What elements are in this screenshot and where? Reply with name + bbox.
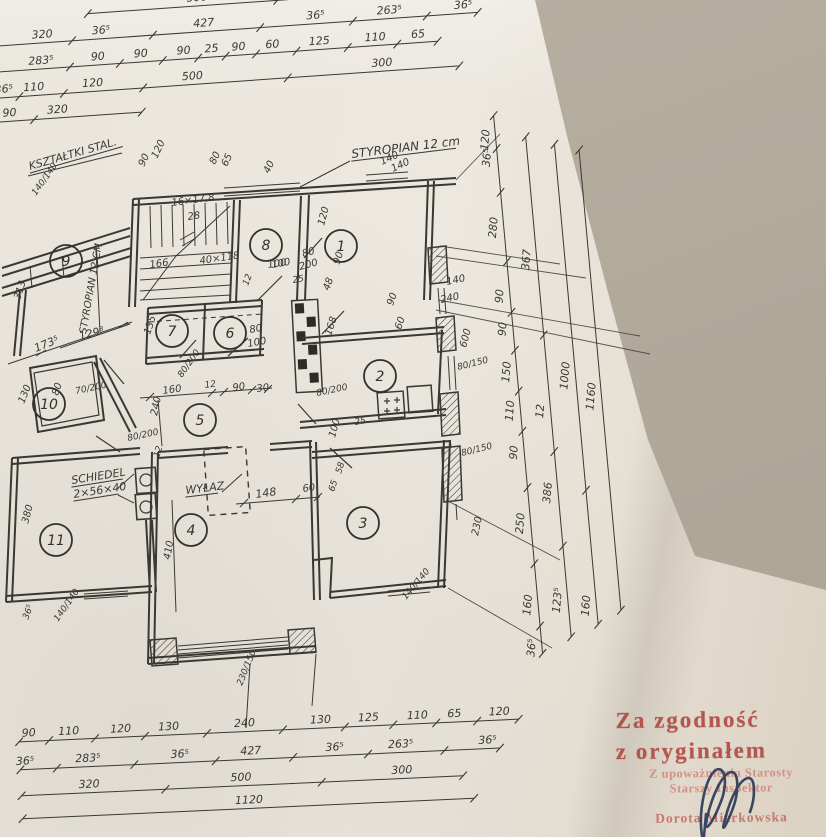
dimension-label: 500 bbox=[181, 69, 203, 83]
dimension-annotation: 380 bbox=[20, 503, 36, 524]
svg-text:70/200: 70/200 bbox=[75, 381, 108, 397]
dimension-annotation: 140 bbox=[445, 273, 466, 288]
dimension-label: 386 bbox=[540, 482, 555, 504]
svg-text:48: 48 bbox=[321, 276, 336, 292]
dimension-annotation: 168 bbox=[323, 315, 339, 337]
svg-text:380: 380 bbox=[20, 503, 36, 524]
dimension-annotation: 100 bbox=[247, 336, 268, 350]
room-circle: 7 bbox=[156, 315, 188, 347]
svg-text:80/150: 80/150 bbox=[460, 441, 493, 458]
dimension-label: 36⁵ bbox=[325, 740, 344, 754]
dimension-annotation: 240 bbox=[149, 396, 164, 417]
svg-text:90: 90 bbox=[232, 381, 246, 394]
dimension-label: 90 bbox=[21, 726, 36, 740]
dimension-annotation: 200 bbox=[298, 257, 319, 273]
dimension-label: 1000 bbox=[557, 361, 572, 390]
svg-text:8: 8 bbox=[262, 238, 271, 254]
dimension-label: 427 bbox=[193, 16, 215, 30]
svg-text:10: 10 bbox=[40, 397, 58, 413]
room-circle: 11 bbox=[40, 524, 72, 556]
stamp-line-2: z oryginałem bbox=[616, 734, 826, 767]
dimension-label: 500 bbox=[186, 0, 208, 5]
svg-text:60: 60 bbox=[302, 482, 316, 495]
dimension-label: 36⁵ bbox=[480, 148, 494, 167]
dimension-annotation: 173⁵ bbox=[32, 333, 60, 355]
dimension-label: 150 bbox=[499, 361, 514, 383]
svg-text:600: 600 bbox=[458, 327, 474, 348]
svg-text:4: 4 bbox=[187, 523, 196, 539]
dimension-label: 1120 bbox=[235, 793, 264, 807]
stamp-line-1: Za zgodność bbox=[615, 703, 825, 736]
dimension-annotation: 80/200 bbox=[176, 348, 203, 380]
dimension-label: 90 bbox=[495, 322, 509, 337]
svg-text:16×17,8: 16×17,8 bbox=[171, 192, 215, 209]
room-circle: 8 bbox=[250, 229, 282, 261]
dimension-label: 123⁵ bbox=[550, 587, 565, 613]
certification-stamp: Za zgodność z oryginałem Z upoważnienia … bbox=[615, 703, 826, 827]
dimension-label: 120 bbox=[110, 722, 132, 736]
dimension-label: 110 bbox=[23, 80, 45, 94]
dimension-label: 280 bbox=[486, 217, 501, 239]
dimension-label: 283⁵ bbox=[28, 53, 54, 68]
dimension-annotation: 230 bbox=[470, 516, 485, 537]
dimension-annotation: 70/200 bbox=[75, 381, 108, 397]
dimension-label: 320 bbox=[78, 777, 100, 791]
svg-text:168: 168 bbox=[323, 315, 339, 337]
dimension-label: 90 bbox=[493, 289, 507, 304]
svg-text:148: 148 bbox=[255, 485, 278, 501]
dimension-label: 1160 bbox=[583, 382, 598, 411]
dimension-label: 263⁵ bbox=[376, 3, 402, 18]
dimension-annotation: 12 bbox=[241, 273, 254, 287]
room-circle: 9 bbox=[50, 245, 82, 277]
label-ksztaltki-stal: KSZTAŁTKI STAL. bbox=[26, 134, 123, 173]
dimension-label: 36⁵ bbox=[91, 23, 110, 37]
dimension-annotation: 230/150 bbox=[236, 648, 259, 687]
room-circle: 5 bbox=[184, 404, 216, 436]
dimension-annotation: 36⁵ bbox=[21, 603, 36, 621]
svg-text:40×118: 40×118 bbox=[199, 250, 240, 266]
dimension-annotation: 120 bbox=[316, 205, 332, 226]
dimension-label: 110 bbox=[58, 724, 80, 738]
dimension-label: 110 bbox=[503, 400, 518, 422]
dimension-annotation: 80/150 bbox=[460, 441, 493, 458]
svg-text:80/200: 80/200 bbox=[176, 348, 203, 380]
svg-text:5: 5 bbox=[196, 413, 205, 429]
svg-text:230/150: 230/150 bbox=[236, 648, 259, 687]
svg-text:80/200: 80/200 bbox=[127, 428, 160, 444]
dimension-label: 36⁵ bbox=[306, 8, 325, 22]
dimension-label: 263⁵ bbox=[388, 737, 414, 751]
svg-text:36⁵: 36⁵ bbox=[21, 603, 36, 621]
dimension-label: 160 bbox=[520, 594, 535, 616]
dimension-label: 36⁵ bbox=[0, 82, 13, 96]
dimension-annotation: 80/150 bbox=[456, 355, 489, 372]
dimension-label: 300 bbox=[391, 763, 413, 777]
dimension-annotation: 600 bbox=[458, 327, 474, 348]
dimension-annotation: 60 bbox=[302, 482, 316, 495]
svg-text:240: 240 bbox=[149, 396, 164, 417]
svg-text:90: 90 bbox=[385, 291, 399, 307]
stamp-signer-name: Dorota Mierkowska bbox=[616, 809, 826, 827]
svg-text:230: 230 bbox=[470, 516, 485, 537]
dimension-annotation: 28 bbox=[187, 210, 201, 223]
dimension-label: 36⁵ bbox=[16, 754, 35, 768]
dimension-annotation: 25 bbox=[292, 274, 305, 286]
dimension-label: 427 bbox=[240, 744, 262, 758]
dimension-annotation: 16×17,8 bbox=[171, 192, 215, 209]
right-dimension-chains: 12036⁵28090901501109025016036⁵3671238612… bbox=[475, 104, 629, 659]
dimension-label: 12 bbox=[533, 404, 547, 419]
dimension-label: 90 bbox=[90, 50, 105, 64]
dimension-label: 110 bbox=[407, 708, 429, 722]
room-circle: 3 bbox=[347, 507, 379, 539]
dimension-annotation: 130 bbox=[17, 383, 34, 405]
room-circle: 4 bbox=[175, 514, 207, 546]
dimension-annotation: 90 bbox=[385, 291, 399, 307]
room-circle: 2 bbox=[364, 360, 396, 392]
dimension-label: 36⁵ bbox=[478, 733, 497, 747]
svg-text:60: 60 bbox=[393, 315, 407, 331]
dimension-label: 36⁵ bbox=[453, 0, 472, 12]
dimension-annotation: 40×118 bbox=[199, 250, 240, 266]
svg-text:12: 12 bbox=[204, 379, 217, 391]
dimension-label: 90 bbox=[231, 40, 246, 54]
dimension-label: 65 bbox=[411, 27, 426, 41]
dimension-annotation: 120 bbox=[150, 138, 168, 160]
dimension-label: 90 bbox=[2, 106, 17, 120]
dimension-annotation: 80/200 bbox=[316, 383, 349, 399]
svg-text:6: 6 bbox=[226, 326, 235, 342]
svg-text:11: 11 bbox=[47, 533, 65, 549]
dimension-annotation: 65 bbox=[327, 479, 340, 493]
svg-text:9: 9 bbox=[62, 254, 71, 270]
stamp-line-4: Starszy Inspektor bbox=[616, 780, 826, 797]
dimension-label: 320 bbox=[46, 102, 68, 116]
dimension-label: 160 bbox=[579, 595, 594, 617]
svg-text:7: 7 bbox=[168, 324, 177, 340]
svg-text:25: 25 bbox=[292, 274, 305, 286]
dimension-annotation: 40 bbox=[262, 159, 277, 175]
svg-text:200: 200 bbox=[298, 257, 319, 273]
svg-text:25: 25 bbox=[354, 416, 367, 428]
dimension-annotation: 48 bbox=[321, 276, 336, 292]
svg-text:12: 12 bbox=[241, 273, 254, 287]
label-wylaz: WYŁAZ bbox=[184, 479, 226, 497]
dimension-label: 90 bbox=[507, 445, 521, 460]
svg-text:80: 80 bbox=[249, 323, 263, 336]
dimension-label: 90 bbox=[176, 44, 191, 58]
svg-text:KSZTAŁTKI STAL.: KSZTAŁTKI STAL. bbox=[27, 135, 118, 173]
svg-text:140: 140 bbox=[445, 273, 466, 288]
dimension-label: 125 bbox=[358, 710, 380, 724]
svg-text:173⁵: 173⁵ bbox=[32, 333, 60, 355]
dimension-label: 250 bbox=[513, 512, 528, 534]
svg-text:120: 120 bbox=[316, 205, 332, 226]
dimension-label: 500 bbox=[230, 770, 252, 784]
dimension-label: 300 bbox=[371, 56, 393, 70]
dimension-annotation: 100 bbox=[327, 417, 343, 438]
dimension-annotation: 100 bbox=[271, 257, 292, 271]
dimension-label: 25 bbox=[204, 42, 219, 56]
svg-text:100: 100 bbox=[271, 257, 292, 271]
dimension-label: 60 bbox=[265, 37, 280, 51]
svg-text:80/150: 80/150 bbox=[456, 355, 489, 372]
svg-text:100: 100 bbox=[327, 417, 343, 438]
top-dimension-chains: 50030032036⁵42736⁵263⁵36⁵283⁵90909025906… bbox=[0, 0, 487, 128]
dimension-annotation: 12 bbox=[204, 379, 217, 391]
dimension-label: 130 bbox=[310, 713, 332, 727]
dimension-label: 110 bbox=[364, 30, 386, 44]
photo-scene: 50030032036⁵42736⁵263⁵36⁵283⁵90909025906… bbox=[0, 0, 826, 837]
dimension-annotation: 25 bbox=[354, 416, 367, 428]
dimension-chains: 50030032036⁵42736⁵263⁵36⁵283⁵90909025906… bbox=[0, 0, 629, 823]
dimension-label: 120 bbox=[488, 705, 510, 719]
dimension-label: 240 bbox=[234, 716, 256, 730]
dimension-label: 120 bbox=[82, 76, 104, 90]
dimension-label: 367 bbox=[519, 249, 534, 271]
dimension-annotation: 80 bbox=[249, 323, 263, 336]
dimension-annotation: 148 bbox=[255, 485, 278, 501]
dimension-annotation: 30 bbox=[256, 382, 270, 395]
svg-text:80/200: 80/200 bbox=[316, 383, 349, 399]
dimension-label: 320 bbox=[31, 27, 53, 41]
dimension-label: 36⁵ bbox=[170, 747, 189, 761]
dimension-annotation: 60 bbox=[393, 315, 407, 331]
svg-text:40: 40 bbox=[262, 159, 277, 175]
dimension-label: 130 bbox=[158, 720, 180, 734]
dimension-label: 125 bbox=[308, 34, 330, 48]
svg-text:28: 28 bbox=[187, 210, 201, 223]
dimension-label: 90 bbox=[133, 47, 148, 61]
bottom-dimension-chains: 901101201302401301251106512036⁵283⁵36⁵42… bbox=[14, 704, 526, 823]
svg-text:130: 130 bbox=[17, 383, 34, 405]
room-circle: 6 bbox=[214, 317, 246, 349]
svg-text:120: 120 bbox=[150, 138, 168, 160]
dimension-label: 120 bbox=[478, 129, 493, 151]
svg-text:30: 30 bbox=[256, 382, 270, 395]
dimension-label: 36⁵ bbox=[524, 638, 538, 657]
svg-text:3: 3 bbox=[359, 516, 368, 532]
svg-text:65: 65 bbox=[327, 479, 340, 493]
dimension-annotation: 80/200 bbox=[127, 428, 160, 444]
dimension-annotation: 90 bbox=[232, 381, 246, 394]
dimension-label: 283⁵ bbox=[75, 751, 101, 765]
dimension-label: 65 bbox=[447, 707, 462, 721]
svg-text:100: 100 bbox=[247, 336, 268, 350]
svg-text:2: 2 bbox=[376, 369, 385, 385]
